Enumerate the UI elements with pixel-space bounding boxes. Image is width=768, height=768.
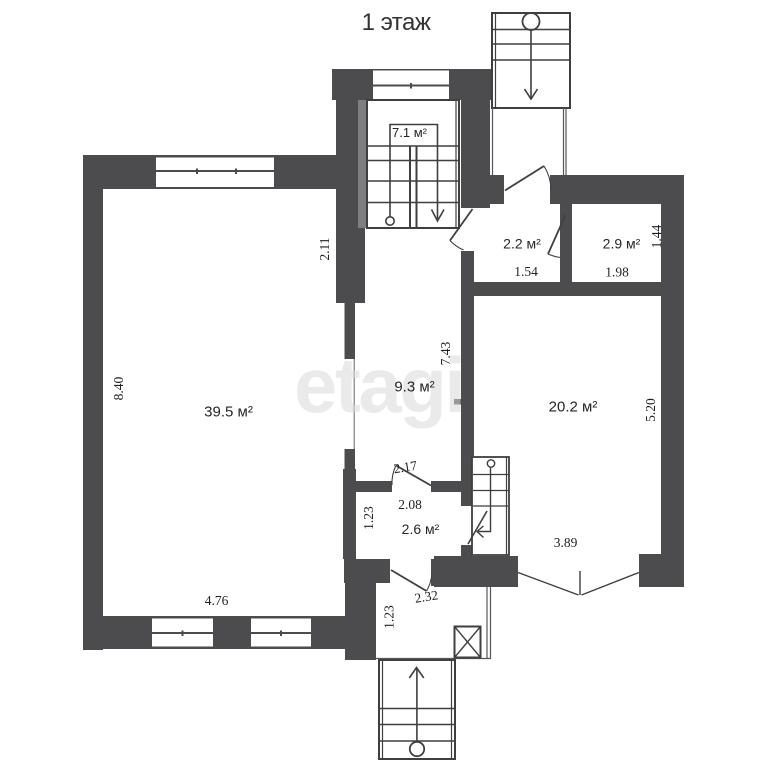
svg-text:1 этаж: 1 этаж [362,9,431,36]
svg-text:4.76: 4.76 [205,593,229,608]
svg-text:5.20: 5.20 [643,398,658,422]
svg-text:7.43: 7.43 [438,341,453,365]
svg-text:2.08: 2.08 [398,497,422,512]
svg-text:1.44: 1.44 [649,224,664,248]
svg-text:9.3 м²: 9.3 м² [394,379,434,396]
svg-text:7.1 м²: 7.1 м² [392,125,428,140]
svg-text:20.2 м²: 20.2 м² [549,399,598,416]
svg-text:2.11: 2.11 [317,237,332,260]
svg-text:2.6 м²: 2.6 м² [402,521,440,537]
svg-text:1.54: 1.54 [514,264,538,279]
svg-text:8.40: 8.40 [111,376,126,400]
svg-text:1.98: 1.98 [605,265,629,280]
svg-text:2.9 м²: 2.9 м² [603,236,641,252]
svg-text:1.23: 1.23 [361,506,376,530]
svg-text:2.2 м²: 2.2 м² [503,236,541,252]
svg-text:1.23: 1.23 [382,605,397,629]
svg-text:3.89: 3.89 [554,535,578,550]
svg-text:39.5 м²: 39.5 м² [204,404,253,421]
